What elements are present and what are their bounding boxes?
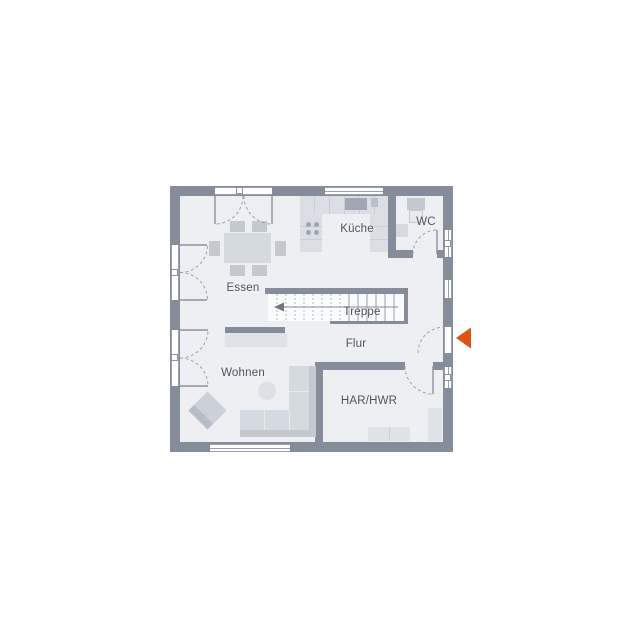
room-label-wohnen: Wohnen bbox=[221, 367, 265, 379]
room-label-essen: Essen bbox=[227, 282, 260, 294]
front-door-swing bbox=[418, 327, 444, 353]
french-door-swing-left-essen bbox=[180, 245, 208, 300]
french-door-swing-left-wohnen bbox=[180, 330, 208, 386]
har-door-swing bbox=[405, 366, 433, 394]
room-label-treppe: Treppe bbox=[343, 306, 380, 318]
room-label-wc: WC bbox=[416, 216, 436, 228]
plan-overlay bbox=[0, 0, 636, 636]
floorplan-canvas: Küche WC Essen Treppe Flur Wohnen HAR/HW… bbox=[0, 0, 636, 636]
wc-door-swing bbox=[413, 230, 437, 254]
room-label-flur: Flur bbox=[346, 338, 367, 350]
room-label-har-hwr: HAR/HWR bbox=[341, 395, 397, 407]
entrance-arrow-icon bbox=[456, 328, 471, 349]
french-door-swing-top bbox=[215, 196, 272, 224]
room-label-kueche: Küche bbox=[340, 223, 374, 235]
